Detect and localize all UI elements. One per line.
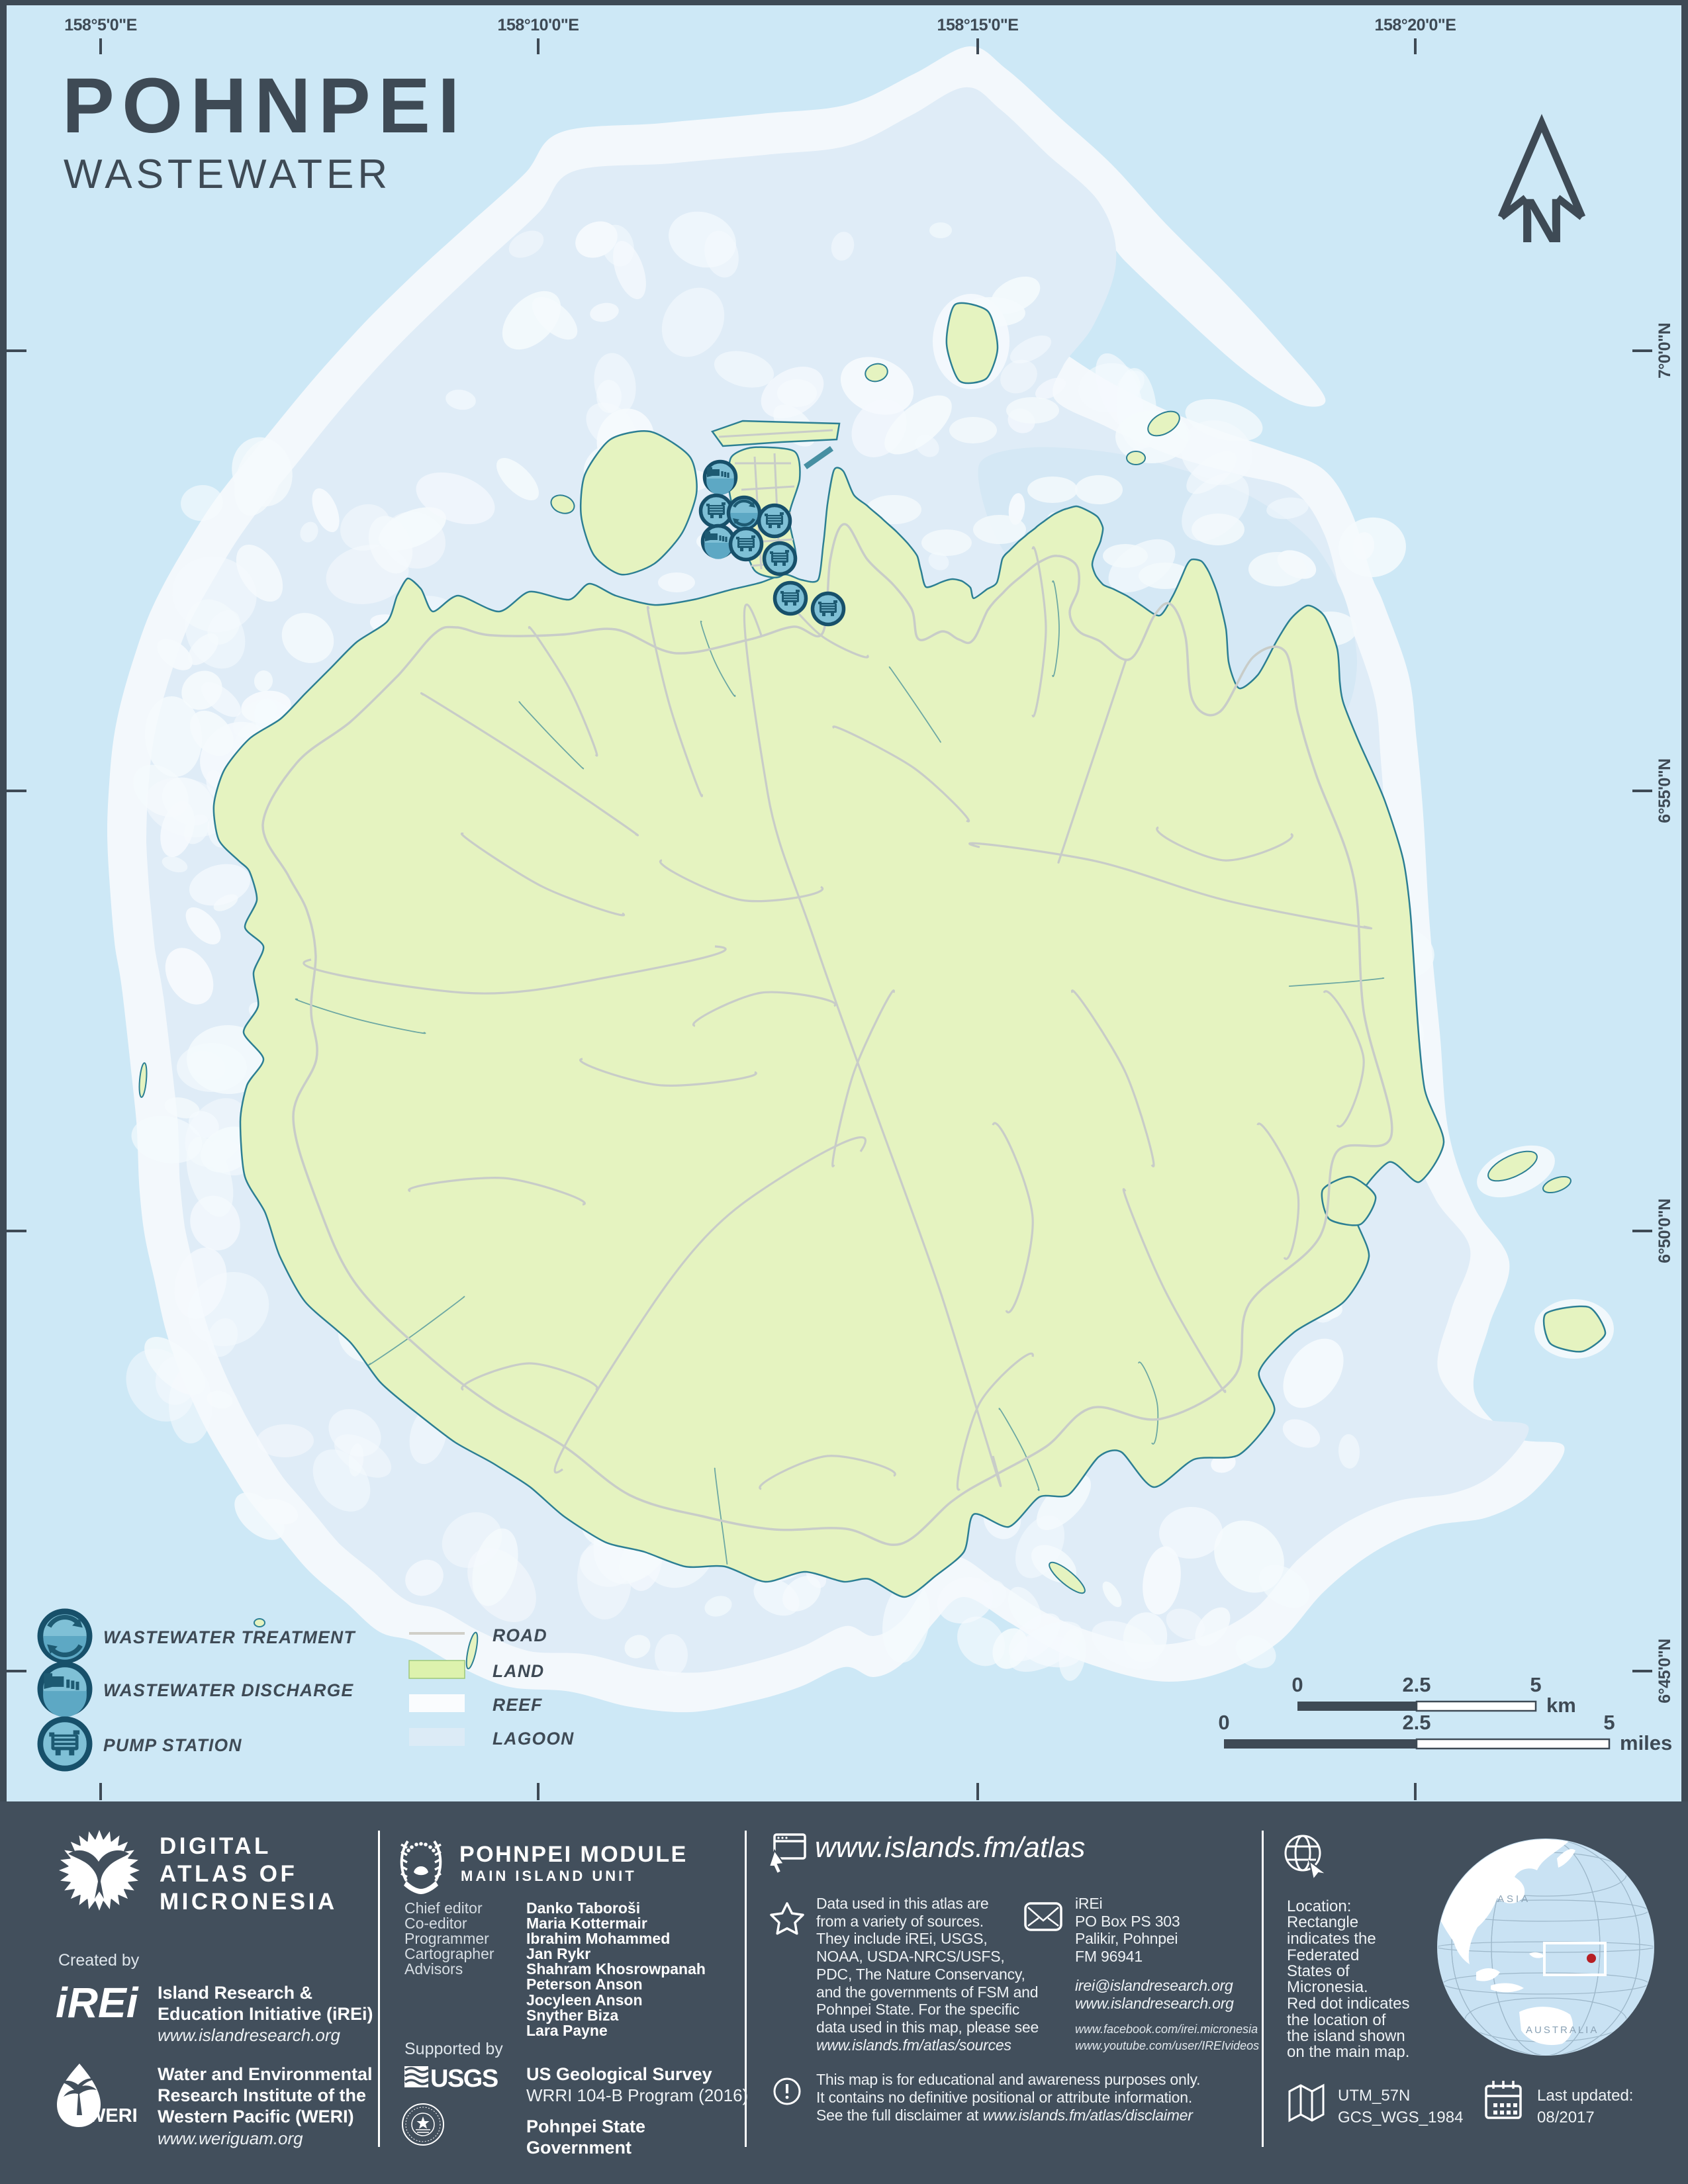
svg-text:Palikir, Pohnpei: Palikir, Pohnpei — [1075, 1930, 1178, 1947]
svg-text:Education Initiative (iREi): Education Initiative (iREi) — [158, 2004, 373, 2024]
svg-text:It contains no definitive posi: It contains no definitive positional or … — [816, 2089, 1192, 2106]
svg-text:Research Institute of the: Research Institute of the — [158, 2085, 366, 2105]
svg-text:Government: Government — [526, 2138, 632, 2158]
svg-text:LAND: LAND — [492, 1661, 544, 1681]
svg-text:PO Box PS 303: PO Box PS 303 — [1075, 1913, 1180, 1930]
svg-text:WASTEWATER DISCHARGE: WASTEWATER DISCHARGE — [103, 1680, 353, 1700]
svg-text:0: 0 — [1218, 1711, 1229, 1734]
svg-text:the location of: the location of — [1287, 2011, 1386, 2029]
svg-text:indicates the: indicates the — [1287, 1930, 1376, 1948]
svg-text:Micronesia.: Micronesia. — [1287, 1978, 1368, 1996]
svg-text:Federated: Federated — [1287, 1946, 1359, 1964]
svg-text:www.youtube.com/user/IREIvideo: www.youtube.com/user/IREIvideos — [1075, 2039, 1259, 2052]
svg-text:ASIA: ASIA — [1497, 1893, 1530, 1905]
svg-text:See the full disclaimer at www: See the full disclaimer at www.islands.f… — [816, 2107, 1194, 2124]
svg-text:0: 0 — [1291, 1673, 1303, 1696]
svg-text:MICRONESIA: MICRONESIA — [160, 1889, 338, 1915]
svg-text:Pohnpei State: Pohnpei State — [526, 2116, 645, 2136]
svg-text:7°0'0"N: 7°0'0"N — [1656, 323, 1674, 379]
svg-text:data used in this map, please: data used in this map, please see — [816, 2019, 1039, 2036]
svg-text:USGS: USGS — [430, 2065, 498, 2093]
svg-text:158°20'0"E: 158°20'0"E — [1375, 16, 1456, 34]
svg-text:ATLAS OF: ATLAS OF — [160, 1861, 297, 1887]
svg-text:WERI: WERI — [87, 2105, 138, 2126]
svg-text:6°45'0"N: 6°45'0"N — [1656, 1639, 1674, 1703]
svg-text:WRRI 104-B Program (2016): WRRI 104-B Program (2016) — [526, 2085, 748, 2105]
svg-text:Pohnpei State. For the specifi: Pohnpei State. For the specific — [816, 2001, 1019, 2018]
svg-text:LAGOON: LAGOON — [492, 1729, 575, 1749]
svg-text:the island shown: the island shown — [1287, 2027, 1405, 2045]
svg-text:Data used in this atlas are: Data used in this atlas are — [816, 1895, 989, 1912]
svg-text:US Geological Survey: US Geological Survey — [526, 2064, 712, 2084]
svg-text:AUSTRALIA: AUSTRALIA — [1526, 2025, 1599, 2036]
svg-text:www.islands.fm/atlas/sources: www.islands.fm/atlas/sources — [816, 2036, 1011, 2054]
svg-text:www.islandresearch.org: www.islandresearch.org — [158, 2025, 341, 2045]
svg-text:Island Research &: Island Research & — [158, 1983, 312, 2003]
svg-text:N: N — [1519, 186, 1565, 256]
svg-text:REEF: REEF — [492, 1695, 542, 1715]
svg-text:FM 96941: FM 96941 — [1075, 1948, 1143, 1965]
svg-text:www.facebook.com/irei.micrones: www.facebook.com/irei.micronesia — [1075, 2023, 1258, 2036]
svg-text:PDC, The Nature Conservancy,: PDC, The Nature Conservancy, — [816, 1966, 1025, 1983]
svg-text:on the main map.: on the main map. — [1287, 2043, 1409, 2061]
svg-text:Last updated:: Last updated: — [1537, 2087, 1633, 2105]
svg-text:2.5: 2.5 — [1402, 1673, 1430, 1696]
svg-text:Created by: Created by — [58, 1951, 140, 1970]
svg-text:2.5: 2.5 — [1402, 1711, 1430, 1734]
svg-text:from a variety of sources.: from a variety of sources. — [816, 1913, 984, 1930]
svg-text:PUMP STATION: PUMP STATION — [103, 1735, 242, 1755]
svg-text:ROAD: ROAD — [492, 1625, 547, 1645]
svg-text:158°10'0"E: 158°10'0"E — [498, 16, 579, 34]
svg-text:Peterson Anson: Peterson Anson — [526, 1976, 643, 1993]
svg-text:5: 5 — [1603, 1711, 1615, 1734]
svg-text:GCS_WGS_1984: GCS_WGS_1984 — [1338, 2109, 1463, 2126]
svg-text:km: km — [1546, 1694, 1576, 1717]
svg-text:They include iREi, USGS,: They include iREi, USGS, — [816, 1930, 988, 1947]
svg-text:Water and Environmental: Water and Environmental — [158, 2064, 373, 2084]
svg-text:www.islandresearch.org: www.islandresearch.org — [1075, 1995, 1234, 2012]
svg-text:miles: miles — [1620, 1731, 1672, 1754]
svg-text:Advisors: Advisors — [404, 1960, 463, 1978]
svg-text:irei@islandresearch.org: irei@islandresearch.org — [1075, 1977, 1233, 1994]
svg-text:WASTEWATER: WASTEWATER — [64, 152, 391, 197]
svg-text:This map is for educational an: This map is for educational and awarenes… — [816, 2071, 1200, 2088]
svg-text:MAIN ISLAND UNIT: MAIN ISLAND UNIT — [461, 1868, 637, 1884]
svg-text:States of: States of — [1287, 1962, 1350, 1980]
svg-text:iREi: iREi — [1075, 1895, 1102, 1912]
svg-text:158°15'0"E: 158°15'0"E — [937, 16, 1019, 34]
svg-text:NOAA, USDA-NRCS/USFS,: NOAA, USDA-NRCS/USFS, — [816, 1948, 1005, 1965]
svg-text:Western Pacific (WERI): Western Pacific (WERI) — [158, 2107, 354, 2126]
svg-text:POHNPEI MODULE: POHNPEI MODULE — [459, 1842, 688, 1867]
svg-text:and the governments of FSM and: and the governments of FSM and — [816, 1983, 1038, 2001]
svg-text:Supported by: Supported by — [404, 2040, 503, 2058]
svg-text:UTM_57N: UTM_57N — [1338, 2087, 1410, 2105]
svg-text:WASTEWATER TREATMENT: WASTEWATER TREATMENT — [103, 1627, 356, 1647]
svg-text:Location:: Location: — [1287, 1897, 1351, 1915]
svg-text:iREi: iREi — [56, 1979, 139, 2026]
svg-text:158°5'0"E: 158°5'0"E — [64, 16, 137, 34]
svg-text:Lara Payne: Lara Payne — [526, 2022, 608, 2039]
svg-text:DIGITAL: DIGITAL — [160, 1833, 271, 1859]
svg-text:www.islands.fm/atlas: www.islands.fm/atlas — [815, 1831, 1085, 1864]
svg-text:08/2017: 08/2017 — [1537, 2109, 1595, 2126]
svg-text:5: 5 — [1530, 1673, 1541, 1696]
svg-text:6°55'0"N: 6°55'0"N — [1656, 758, 1674, 823]
svg-text:Rectangle: Rectangle — [1287, 1913, 1358, 1931]
svg-text:POHNPEI: POHNPEI — [62, 62, 467, 150]
svg-text:Red dot indicates: Red dot indicates — [1287, 1995, 1409, 2013]
svg-text:www.weriguam.org: www.weriguam.org — [158, 2128, 303, 2148]
svg-text:6°50'0"N: 6°50'0"N — [1656, 1199, 1674, 1263]
